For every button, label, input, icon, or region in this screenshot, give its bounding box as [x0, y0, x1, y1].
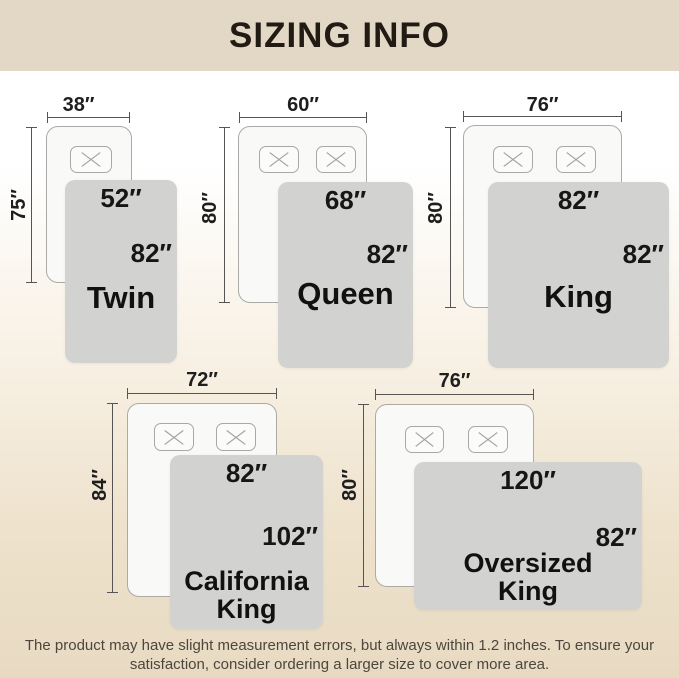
- pillow: [493, 146, 533, 173]
- blanket-width-label: 120″: [414, 465, 642, 496]
- bed-height-label: 75″: [9, 183, 29, 227]
- pillow-x-icon: [260, 147, 298, 172]
- size-name: Queen: [278, 276, 413, 312]
- sizing-info-page: SIZING INFO 38″ 75″ 52″ 82″ Twin 60″ 80″: [0, 0, 679, 678]
- blanket-width-label: 82″: [170, 458, 323, 489]
- pillow: [259, 146, 299, 173]
- page-title: SIZING INFO: [229, 16, 450, 56]
- blanket-height-label: 82″: [131, 238, 172, 269]
- pillow-x-icon: [155, 424, 193, 450]
- height-dimension-line: [450, 127, 451, 308]
- diagram-queen: 60″ 80″ 68″ 82″ Queen: [200, 95, 425, 375]
- bed-height-label: 84″: [90, 463, 110, 507]
- blanket-width-label: 52″: [65, 183, 177, 214]
- height-dimension-line: [31, 127, 32, 283]
- blanket-height-label: 82″: [367, 239, 408, 270]
- size-name: California King: [172, 567, 322, 623]
- pillow: [70, 146, 112, 173]
- size-name: Twin: [65, 280, 177, 316]
- diagram-oversized-king: 76″ 80″ 120″ 82″ Oversized King: [330, 370, 660, 615]
- pillow: [316, 146, 356, 173]
- pillow-x-icon: [71, 147, 111, 172]
- width-dimension-line: [127, 393, 277, 394]
- pillow: [405, 426, 444, 453]
- bed-width-label: 72″: [127, 370, 277, 390]
- pillow-x-icon: [469, 427, 507, 452]
- bed-width-label: 60″: [239, 95, 367, 115]
- pillow: [468, 426, 508, 453]
- bed-width-label: 76″: [463, 95, 622, 115]
- height-dimension-line: [363, 404, 364, 587]
- size-name: Oversized King: [438, 549, 618, 605]
- width-dimension-line: [463, 116, 622, 117]
- blanket-width-label: 82″: [488, 185, 669, 216]
- pillow-x-icon: [317, 147, 355, 172]
- blanket: 120″ 82″ Oversized King: [414, 462, 642, 610]
- header-bar: SIZING INFO: [0, 0, 679, 71]
- pillow-x-icon: [217, 424, 255, 450]
- blanket-height-label: 82″: [623, 239, 664, 270]
- pillow-x-icon: [494, 147, 532, 172]
- blanket: 82″ 102″ California King: [170, 455, 323, 629]
- blanket: 52″ 82″ Twin: [65, 180, 177, 363]
- blanket: 68″ 82″ Queen: [278, 182, 413, 368]
- width-dimension-line: [47, 117, 130, 118]
- width-dimension-line: [375, 394, 534, 395]
- diagram-twin: 38″ 75″ 52″ 82″ Twin: [0, 95, 190, 370]
- bed-height-label: 80″: [426, 186, 446, 230]
- blanket-height-label: 102″: [262, 521, 318, 552]
- bed-width-label: 76″: [375, 371, 534, 391]
- pillow-x-icon: [557, 147, 595, 172]
- diagram-california-king: 72″ 84″ 82″ 102″ California King: [85, 370, 335, 632]
- diagram-king: 76″ 80″ 82″ 82″ King: [425, 95, 679, 375]
- bed-height-label: 80″: [200, 186, 220, 230]
- pillow: [556, 146, 596, 173]
- pillow: [216, 423, 256, 451]
- pillow-x-icon: [406, 427, 443, 452]
- disclaimer-text: The product may have slight measurement …: [25, 636, 655, 674]
- blanket-width-label: 68″: [278, 185, 413, 216]
- pillow: [154, 423, 194, 451]
- bed-height-label: 80″: [340, 463, 360, 507]
- height-dimension-line: [224, 127, 225, 303]
- size-name: King: [488, 279, 669, 315]
- bed-width-label: 38″: [37, 95, 120, 115]
- blanket: 82″ 82″ King: [488, 182, 669, 368]
- height-dimension-line: [112, 403, 113, 593]
- width-dimension-line: [239, 117, 367, 118]
